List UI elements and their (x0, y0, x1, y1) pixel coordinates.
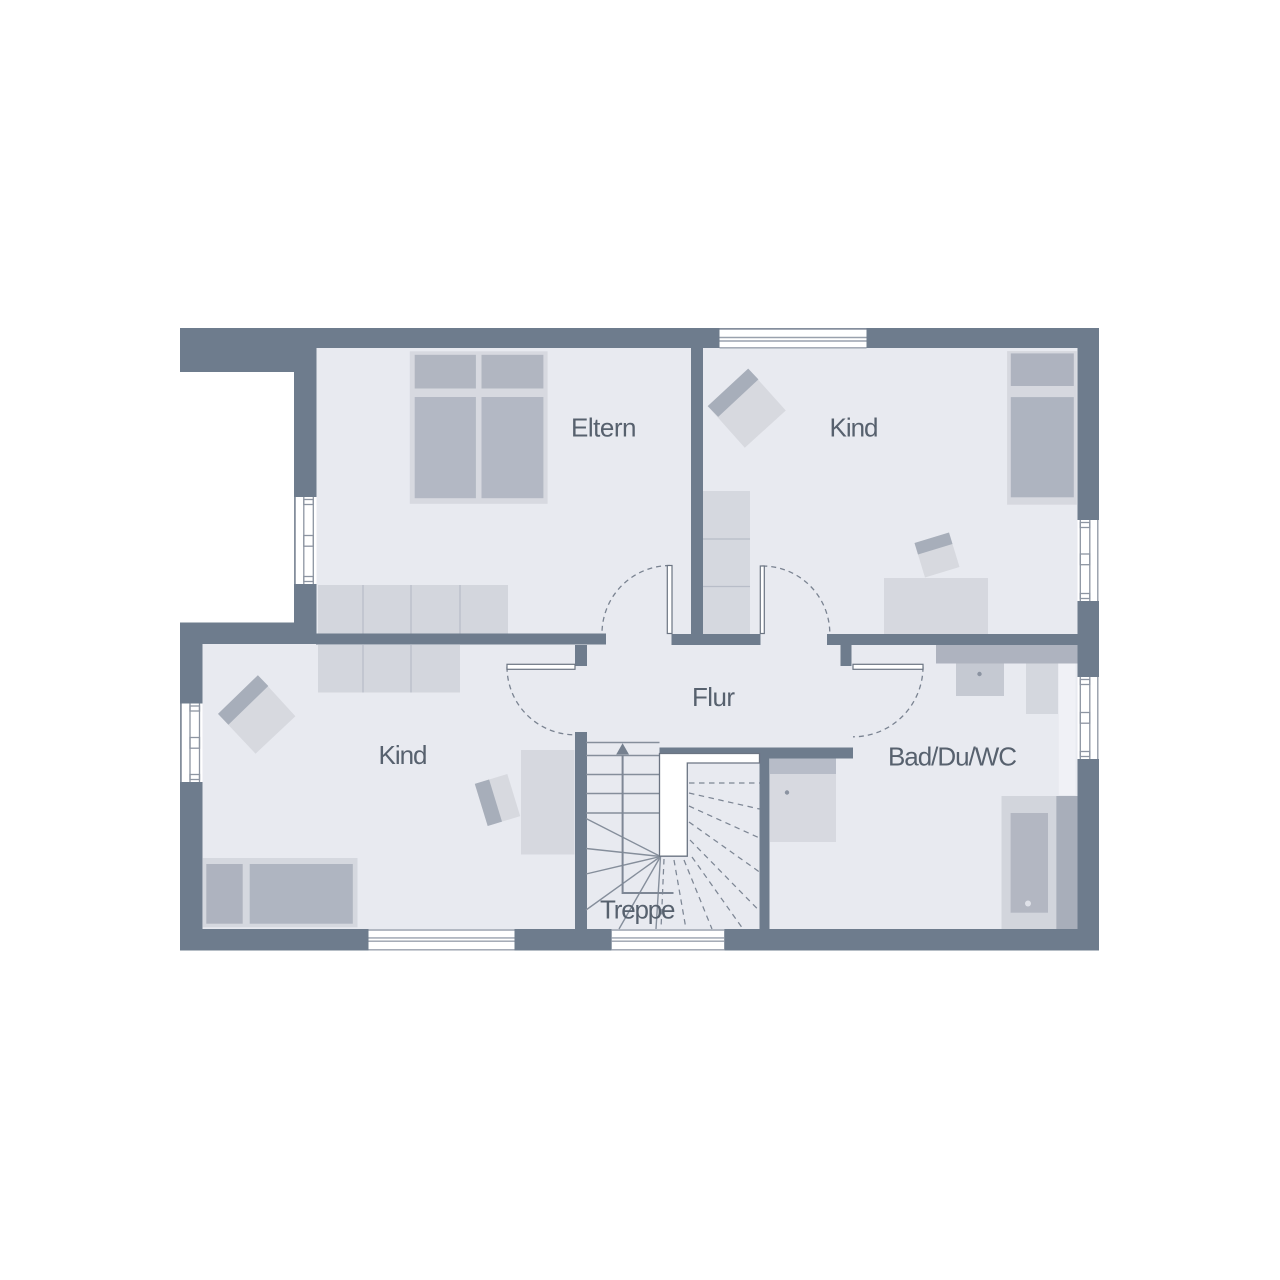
svg-text:Treppe: Treppe (600, 895, 676, 925)
svg-text:Bad/Du/WC: Bad/Du/WC (888, 742, 1017, 772)
svg-text:Kind: Kind (830, 412, 879, 442)
svg-text:Kind: Kind (379, 740, 428, 770)
svg-text:Flur: Flur (692, 682, 735, 712)
svg-text:Eltern: Eltern (571, 412, 637, 442)
